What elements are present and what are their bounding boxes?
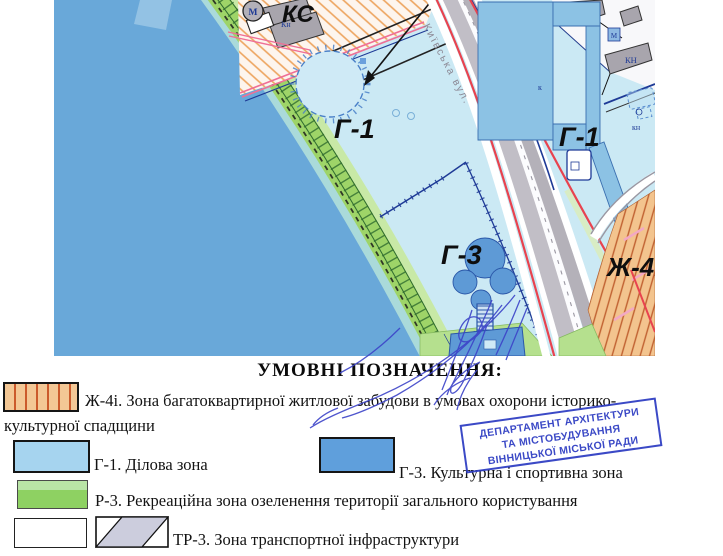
zoning-map-svg: М Кн [54,0,655,356]
legend-label-tr3: ТР-3. Зона транспортної інфраструктури [173,530,459,550]
legend-title: УМОВНІ ПОЗНАЧЕННЯ: [180,360,580,382]
g3-zone-label: Г-3 [441,240,482,270]
g1-right-label: Г-1 [559,122,600,152]
legend-swatch-tr3-parallelogram [95,516,169,548]
legend-label-zh4i-line2: культурної спадщини [4,416,155,436]
g1-left-label: Г-1 [334,114,375,144]
svg-text:М: М [611,32,618,40]
legend-label-zh4i-line1: Ж-4і. Зона багатоквартирної житлової заб… [85,391,616,411]
scanned-zoning-plan-page: { "map": { "labels": { "ks": "КС", "g1_l… [0,0,723,556]
kn-lower-label: кн [632,123,641,132]
legend-swatch-g3 [319,437,395,473]
ks-zone-label: КС [282,1,314,28]
legend-swatch-r3 [17,480,88,509]
monument-stem [477,304,493,332]
kn-upper-label: КН [625,55,637,65]
legend-label-g1: Г-1. Ділова зона [94,455,208,475]
legend-swatch-tr3-white [14,518,87,548]
legend-swatch-zh4i [3,382,79,412]
legend-swatch-g1 [13,440,90,473]
legend-label-r3: Р-3. Рекреаційна зона озеленення територ… [95,491,578,511]
zh4-zone-label: Ж-4і [605,252,655,282]
metro-label: М [249,8,258,18]
k-small-label: к [538,83,542,92]
zoning-map: М Кн [54,0,655,356]
